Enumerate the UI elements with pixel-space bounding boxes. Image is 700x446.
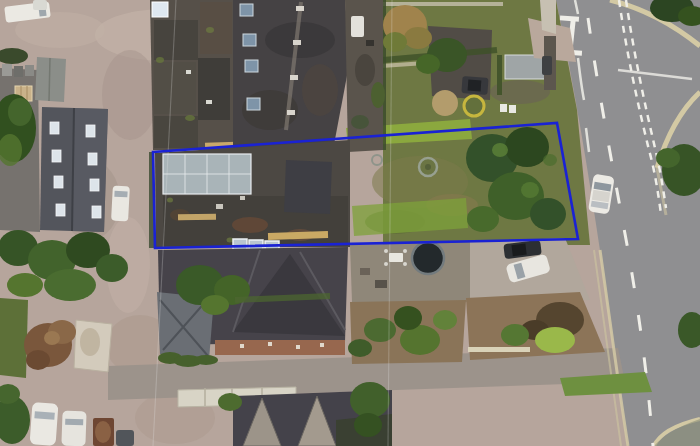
solar-panel: [152, 2, 168, 17]
grass-strip-left: [0, 298, 28, 378]
garden-table: [389, 253, 403, 262]
pavement-top: [540, 0, 556, 34]
sand-circle: [432, 90, 458, 116]
hedge-mid: [497, 55, 502, 95]
van-on-lane: [111, 186, 130, 222]
car-backyard: [351, 16, 364, 37]
chartreuse-bush: [535, 327, 575, 353]
van-parked-dark: [116, 430, 134, 446]
car-top-left: [33, 0, 47, 10]
paddling-pool: [464, 96, 484, 116]
car-parked-2: [61, 411, 86, 446]
car-garden: [461, 76, 488, 95]
car-parked-1: [30, 402, 59, 446]
hip-roof: [284, 160, 332, 214]
garden-fence: [468, 347, 530, 352]
aerial-photo: [0, 0, 700, 446]
brick-wall: [215, 340, 345, 355]
truck-parked: [93, 418, 114, 446]
car-by-wall: [542, 56, 552, 75]
trampoline: [412, 242, 444, 274]
aerial-photo-canvas: [0, 0, 700, 446]
